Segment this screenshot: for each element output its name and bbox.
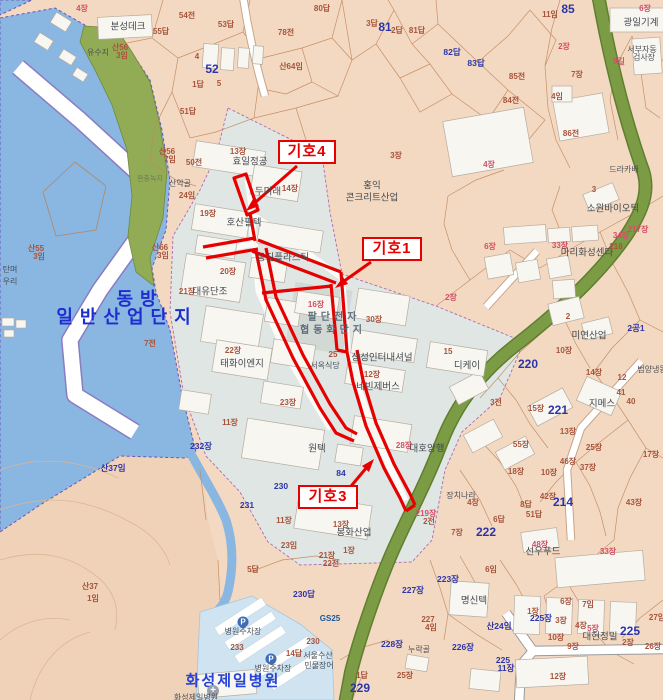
marker-box-giho4: 기호4 — [278, 140, 336, 164]
marker-label: 기호1 — [373, 240, 412, 257]
marker-label: 기호3 — [309, 488, 348, 505]
marker-box-giho1: 기호1 — [362, 237, 422, 261]
marker-label: 기호4 — [288, 143, 327, 160]
map-canvas[interactable]: 4장80답54전53답55답78전분성데크유수지산563임452산64임1답55… — [0, 0, 663, 700]
map-graphics — [0, 0, 663, 700]
marker-box-giho3: 기호3 — [298, 485, 358, 509]
